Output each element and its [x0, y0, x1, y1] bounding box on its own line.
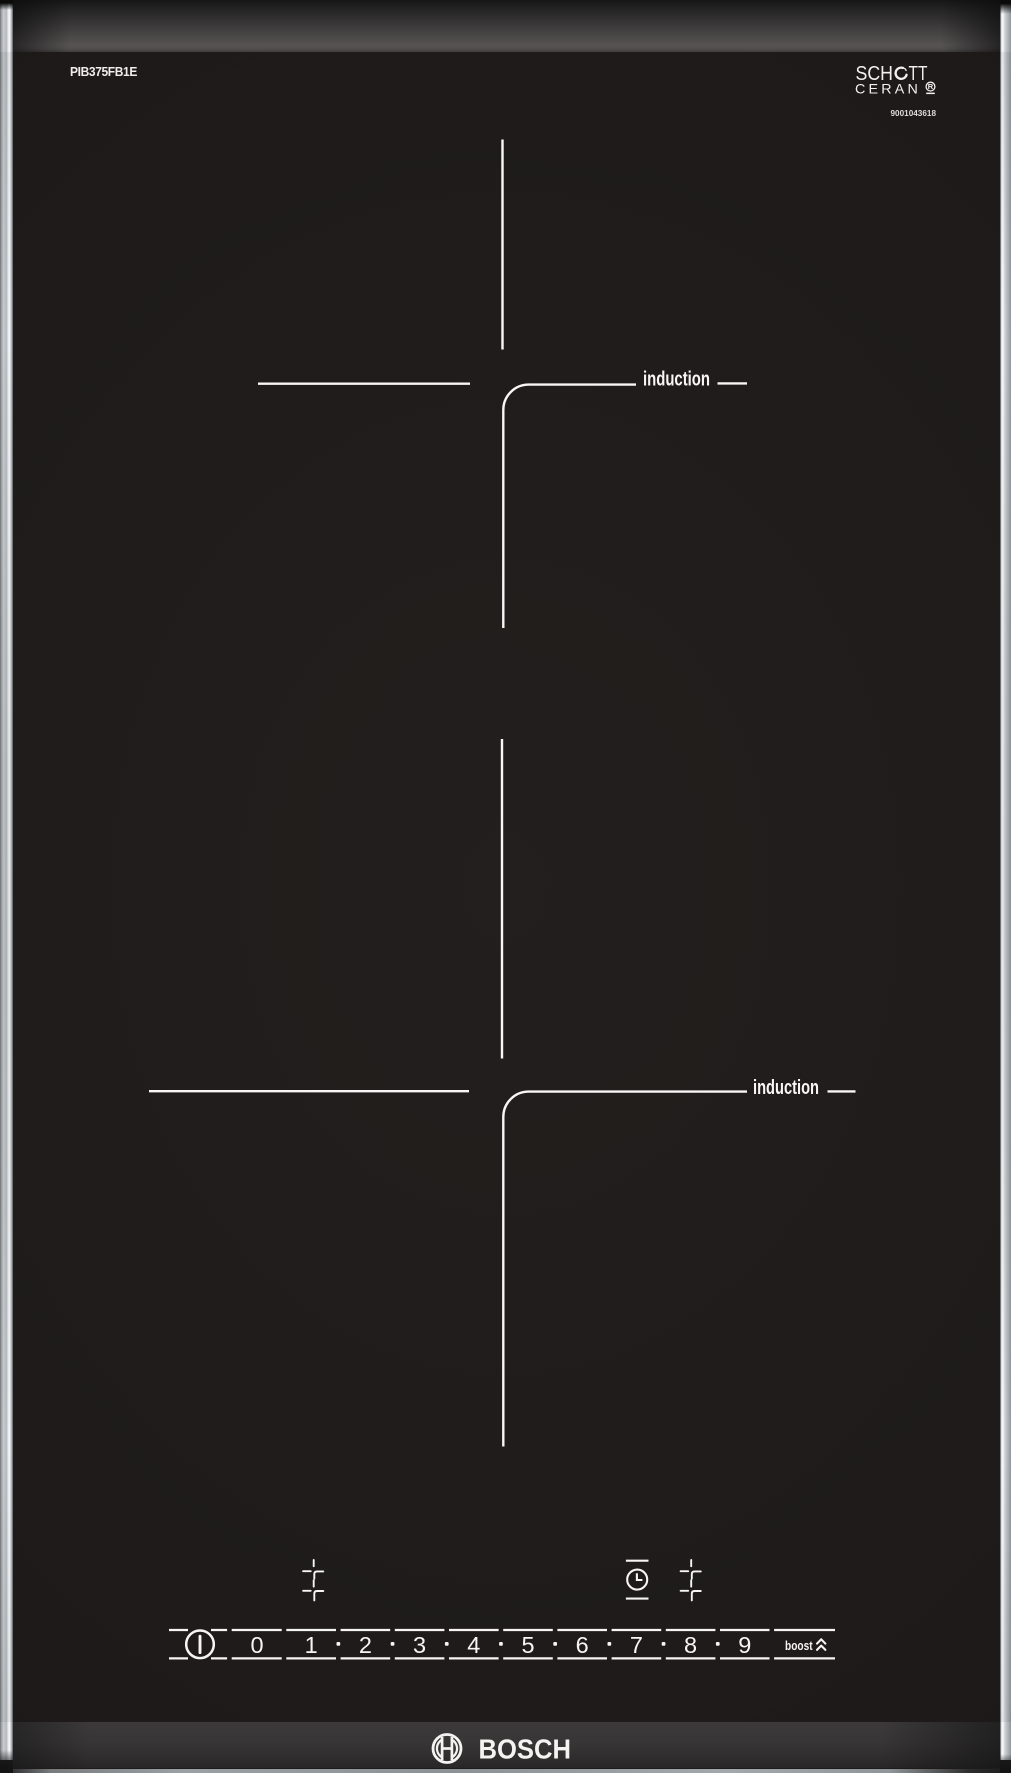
svg-text:9: 9	[738, 1632, 751, 1658]
svg-text:2: 2	[359, 1632, 372, 1658]
svg-text:0: 0	[250, 1632, 263, 1658]
svg-text:CERAN: CERAN	[855, 81, 921, 97]
svg-text:5: 5	[521, 1632, 534, 1658]
svg-text:induction: induction	[753, 1076, 819, 1099]
svg-text:8: 8	[684, 1632, 697, 1658]
svg-text:4: 4	[467, 1632, 480, 1658]
svg-text:PIB375FB1E: PIB375FB1E	[70, 64, 138, 79]
svg-text:6: 6	[576, 1632, 589, 1658]
svg-text:9001043618: 9001043618	[891, 108, 937, 118]
svg-text:induction: induction	[643, 368, 710, 391]
svg-text:7: 7	[630, 1632, 643, 1658]
svg-text:1: 1	[305, 1632, 318, 1658]
svg-text:BOSCH: BOSCH	[479, 1734, 572, 1765]
svg-text:boost: boost	[785, 1638, 813, 1653]
svg-text:3: 3	[413, 1632, 426, 1658]
svg-text:R: R	[928, 82, 934, 91]
